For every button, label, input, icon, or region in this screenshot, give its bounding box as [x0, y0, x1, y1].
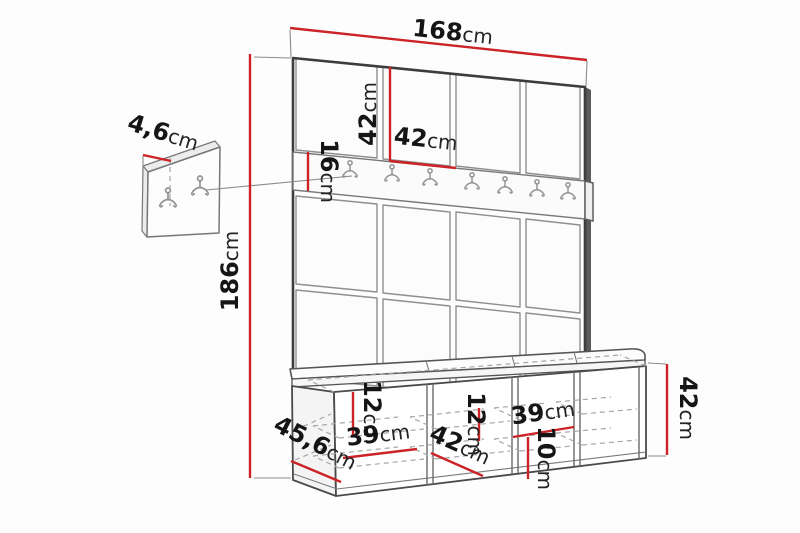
- svg-text:16cm: 16cm: [315, 139, 343, 203]
- rail-end-cap: [585, 181, 593, 221]
- dim-unit: cm: [316, 172, 340, 202]
- dim-value: 42: [354, 113, 382, 146]
- dim-value: 12: [462, 392, 490, 425]
- panel-tile: [456, 212, 520, 307]
- dimension-bench-height: 42cm: [648, 363, 702, 456]
- dimension-diagram: 168cm 42cm 42cm 16cm 186cm 4,6cm 12cm 39…: [0, 0, 800, 533]
- dim-value: 42: [674, 376, 702, 409]
- dim-unit: cm: [357, 82, 381, 112]
- dim-value: 12: [358, 380, 386, 413]
- dim-unit: cm: [219, 231, 243, 261]
- dim-value: 16: [315, 139, 343, 172]
- svg-text:168cm: 168cm: [411, 14, 494, 50]
- dim-unit: cm: [426, 128, 459, 155]
- dim-unit: cm: [378, 419, 411, 447]
- dim-value: 186: [216, 261, 244, 311]
- panel-tile: [383, 205, 450, 300]
- dim-value: 42: [393, 122, 429, 153]
- svg-text:4,6cm: 4,6cm: [124, 108, 202, 156]
- dim-unit: cm: [461, 22, 494, 49]
- svg-text:42cm: 42cm: [674, 376, 702, 440]
- panel-tile: [456, 74, 520, 173]
- dim-unit: cm: [543, 397, 577, 425]
- diagram-canvas: 168cm 42cm 42cm 16cm 186cm 4,6cm 12cm 39…: [0, 0, 800, 533]
- svg-text:42cm: 42cm: [354, 82, 382, 146]
- dimension-shelf-gap-middle: 12cm: [462, 392, 490, 456]
- svg-text:10cm: 10cm: [532, 426, 560, 490]
- panel-tile: [526, 81, 580, 179]
- panel-tile: [296, 196, 377, 292]
- dim-unit: cm: [675, 409, 699, 439]
- dim-unit: cm: [533, 459, 557, 489]
- dim-value: 10: [532, 426, 560, 459]
- dimension-shelf-gap-bottom: 10cm: [528, 426, 560, 490]
- dim-unit: cm: [463, 425, 487, 455]
- dim-value: 168: [411, 14, 464, 47]
- svg-text:186cm: 186cm: [216, 231, 244, 312]
- svg-text:12cm: 12cm: [462, 392, 490, 456]
- panel-tile: [526, 219, 580, 313]
